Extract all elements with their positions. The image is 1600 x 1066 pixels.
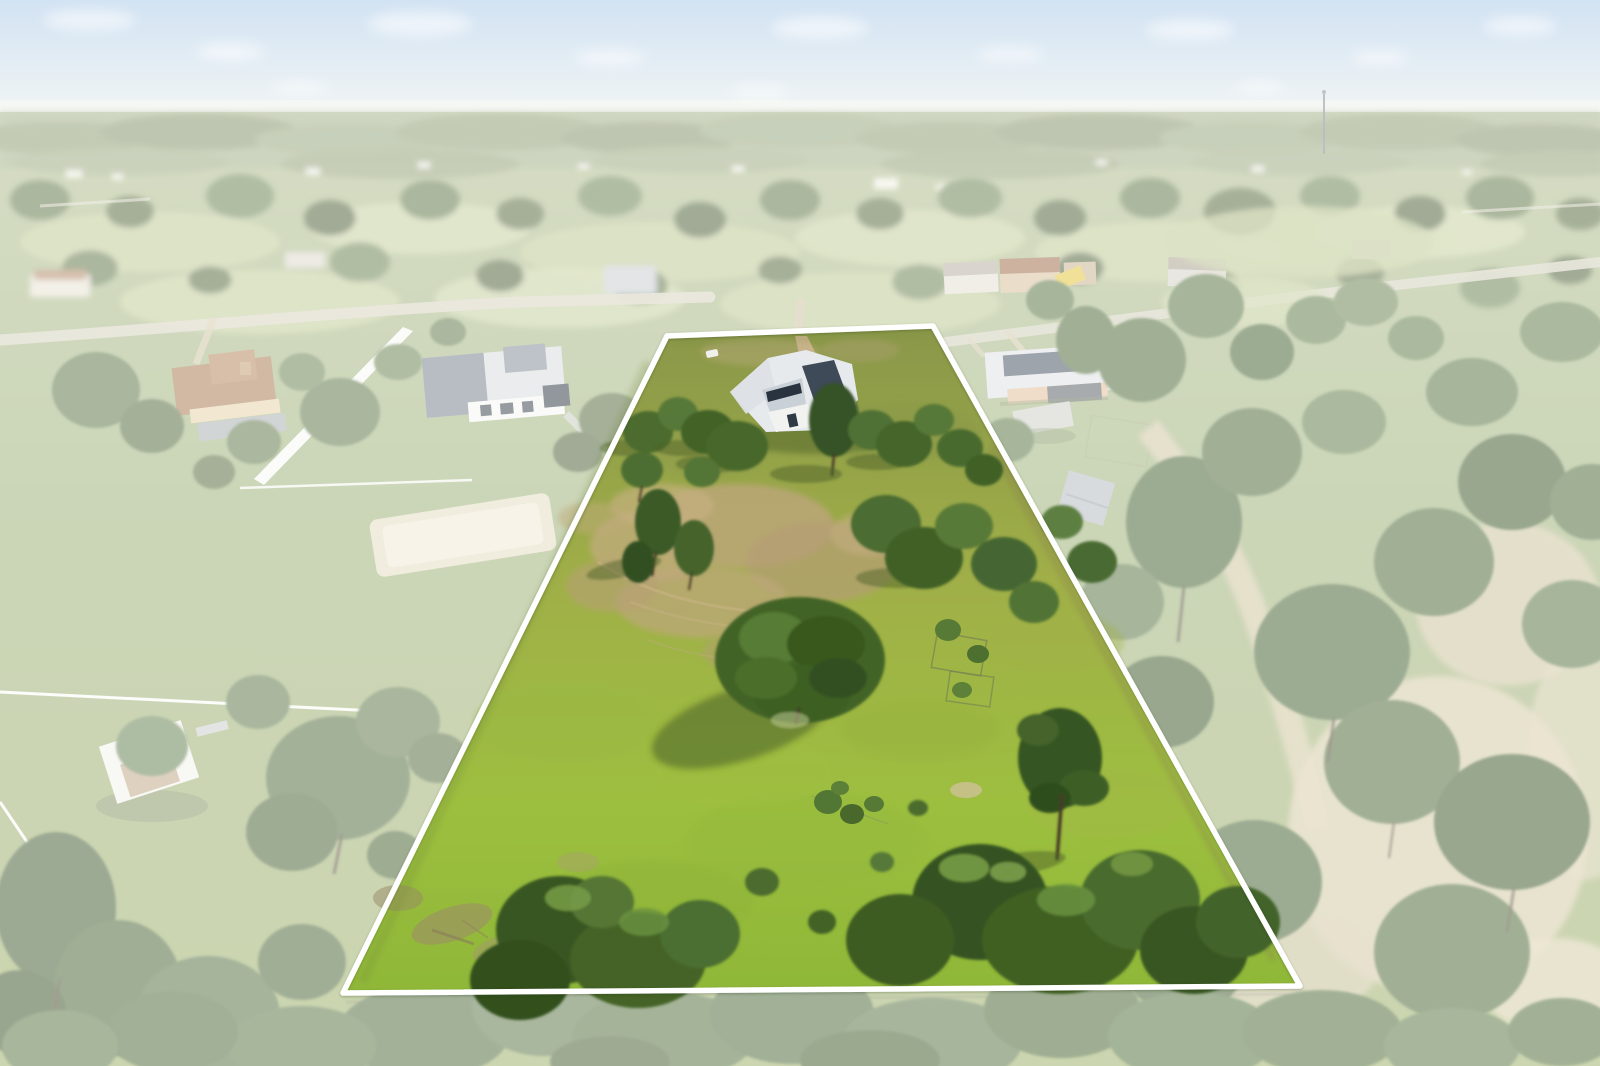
parcel-features-item — [967, 645, 989, 663]
parcel-trees-item — [846, 894, 954, 986]
parcel-trees-item — [1037, 884, 1095, 916]
photo-layers — [0, 0, 1600, 1066]
parcel-trees-item — [990, 862, 1026, 882]
parcel-trees-item — [809, 658, 867, 698]
parcel-trees-item — [622, 541, 654, 583]
parcel-trees-item — [545, 885, 591, 911]
parcel-trees-item — [619, 908, 669, 936]
parcel-trees-item — [939, 854, 989, 882]
parcel-trees-item — [621, 452, 663, 488]
parcel-trees-item — [770, 465, 842, 483]
parcel-trees-item — [1111, 852, 1153, 876]
parcel-trees-item — [1029, 783, 1071, 813]
pine-tree — [674, 520, 714, 576]
parcel-interior-item — [840, 698, 1000, 762]
parcel-trees-item — [660, 900, 740, 968]
aerial-photo-canvas — [0, 0, 1600, 1066]
parcel-trees-item — [908, 800, 928, 816]
parcel-trees-item — [1017, 714, 1059, 746]
parcel-trees-item — [745, 868, 779, 896]
parcel-features-item — [557, 852, 599, 872]
parcel-trees-item — [684, 457, 720, 487]
parcel-trees-item — [965, 454, 1003, 486]
parcel-trees-item — [771, 712, 809, 728]
sapling — [840, 804, 864, 824]
parcel-trees-item — [1009, 581, 1059, 623]
parcel-trees-item — [870, 852, 894, 872]
sapling — [831, 781, 849, 795]
sapling — [864, 796, 884, 812]
parcel-trees-item — [808, 910, 836, 934]
parcel-features-item — [935, 619, 961, 641]
parcel-features-item — [952, 682, 972, 698]
parcel-features-item — [950, 782, 982, 798]
parcel-interior-item — [474, 682, 658, 762]
parcel-trees-item — [735, 657, 797, 699]
parcel-trees-item — [935, 503, 993, 549]
aerial-photo — [0, 0, 1600, 1066]
parcel-trees-item — [470, 940, 570, 1020]
parcel-trees-item — [914, 404, 954, 436]
